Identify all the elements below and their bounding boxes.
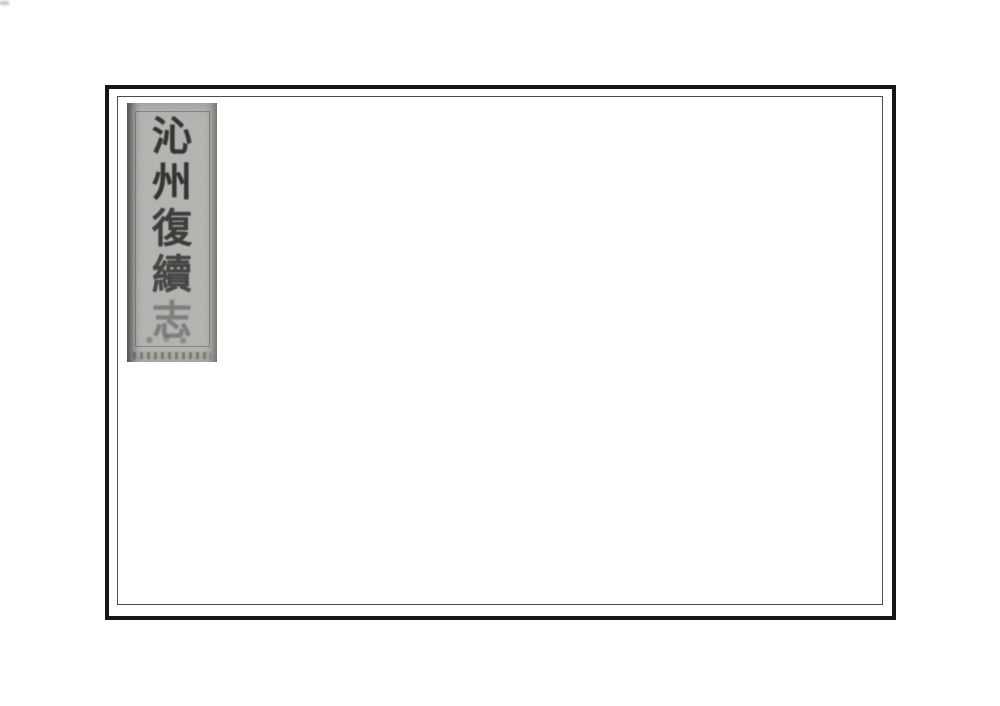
label-right-shade xyxy=(206,103,217,362)
title-label-strip: 沁 州 復 續 志 xyxy=(127,103,217,362)
title-char-zhou: 州 xyxy=(152,160,192,206)
scan-artifact-speck xyxy=(0,1,9,5)
book-cover: 沁 州 復 續 志 xyxy=(105,85,896,620)
title-char-fu: 復 xyxy=(152,206,192,252)
title-char-xu: 續 xyxy=(152,252,192,298)
title-char-qin: 沁 xyxy=(152,114,192,160)
label-bottom-smudge xyxy=(133,352,211,359)
binding-shadow xyxy=(127,103,142,362)
cover-inner-border xyxy=(117,96,883,605)
label-faded-marks xyxy=(141,334,197,346)
scan-page: 沁 州 復 續 志 xyxy=(0,0,1000,706)
